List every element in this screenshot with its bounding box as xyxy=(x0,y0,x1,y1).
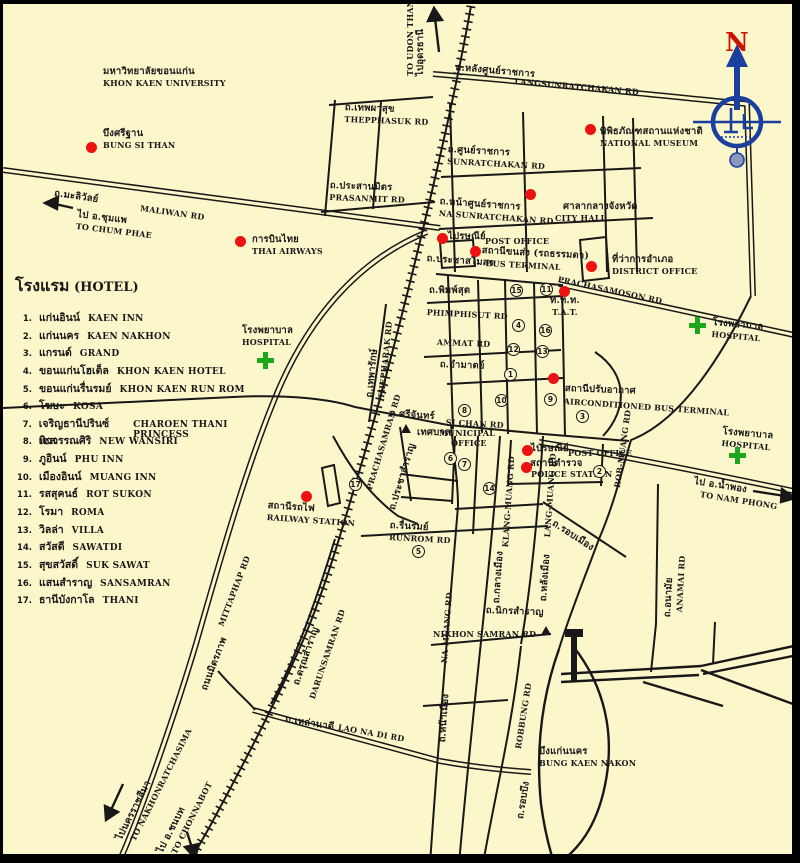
nikhon-samran-triangle-icon xyxy=(541,626,551,635)
label-prasanmit-rd: ถ.ประสานมิตรPRASANMIT RD xyxy=(329,180,405,204)
legend-item-5: 5.ขอนแก่นรื่นรมย์KHON KAEN RUN ROM xyxy=(15,380,285,398)
poi-dot-thai-airways xyxy=(235,236,246,247)
legend-title: โรงแรม (HOTEL) xyxy=(15,274,285,299)
label-ammat-rd-thai: ถ.อำมาตย์ xyxy=(440,359,485,372)
legend-item-6: 6.โฆษะKOSA xyxy=(15,397,285,415)
legend-item-7: 7.เจริญธานีปรินซ์เซสCHAROEN THANI PRINCE… xyxy=(15,415,285,433)
label-city-hall: ศาลากลางจังหวัดCITY HALL xyxy=(555,201,638,223)
compass-ball xyxy=(730,153,744,167)
legend-item-4: 4.ขอนแก่นโฮเต็ลKHON KAEN HOTEL xyxy=(15,362,285,380)
hotel-marker-17: 17 xyxy=(349,478,362,491)
hotel-marker-16: 16 xyxy=(539,324,552,337)
arrow-to-nakhonratchasima xyxy=(105,784,123,820)
legend-item-9: 9.ภูอินน์PHU INN xyxy=(15,450,285,468)
municipal-office-triangle-icon xyxy=(401,424,411,433)
label-ac-bus-terminal-thai: สถานีปรับอากาศ xyxy=(565,383,636,397)
legend-item-11: 11.รสสุคนธ์ROT SUKON xyxy=(15,485,285,503)
poi-dot-ac-bus-terminal xyxy=(548,373,559,384)
label-municipal-office-english: MUNICIPALOFFICE xyxy=(439,428,495,448)
poi-dot-city-hall xyxy=(525,189,536,200)
poi-dot-bus-terminal xyxy=(470,246,481,257)
poi-dot-police-station xyxy=(521,462,532,473)
label-khon-kaen-university: มหาวิทยาลัยขอนแก่นKHON KAEN UNIVERSITY xyxy=(103,66,226,88)
hotel-marker-6: 6 xyxy=(444,452,457,465)
hotel-marker-14: 14 xyxy=(483,482,496,495)
label-runrom-rd: ถ.รื่นรมย์RUNROM RD xyxy=(389,520,452,545)
hotel-marker-5: 5 xyxy=(412,545,425,558)
label-thai-airways: การบินไทยTHAI AIRWAYS xyxy=(252,234,323,256)
poi-dot-district-office xyxy=(586,261,597,272)
khon-kaen-city-map: โรงแรม (HOTEL) 1.แก่นอินน์KAEN INN 2.แก่… xyxy=(0,0,800,863)
hotel-marker-10: 10 xyxy=(495,394,508,407)
hospital-cross-northeast-icon xyxy=(689,317,706,334)
label-post-office-north-thai: ไปรษณีย์ xyxy=(448,231,486,243)
hotel-marker-13: 13 xyxy=(536,345,549,358)
label-nikhon-samran-rd-thai: ถ.นิกรสำราญ xyxy=(486,605,544,619)
legend-item-13: 13.วิลล่าVILLA xyxy=(15,521,285,539)
hotel-marker-11: 11 xyxy=(540,283,553,296)
poi-dot-tat-office xyxy=(559,286,570,297)
arrow-to-udon-thani xyxy=(428,8,442,52)
hospital-cross-east-icon xyxy=(729,447,746,464)
poi-dot-bung-si-than xyxy=(86,142,97,153)
poi-dot-post-office-south xyxy=(522,445,533,456)
label-bung-kaen-nakon: บึงแก่นนครBUNG KAEN NAKON xyxy=(539,746,636,768)
label-hospital-west: โรงพยาบาลHOSPITAL xyxy=(242,325,293,347)
hotel-marker-2: 2 xyxy=(593,465,606,478)
hotel-marker-7: 7 xyxy=(458,458,471,471)
legend-item-1: 1.แก่นอินน์KAEN INN xyxy=(15,309,285,327)
legend-item-14: 14.สวัสดีSAWATDI xyxy=(15,538,285,556)
hotel-marker-9: 9 xyxy=(544,393,557,406)
hotel-marker-1: 1 xyxy=(504,368,517,381)
hospital-cross-west-icon xyxy=(257,352,274,369)
hotel-marker-4: 4 xyxy=(512,319,525,332)
hotel-marker-12: 12 xyxy=(507,343,520,356)
label-phimphisut-rd-thai: ถ.พิมพ์สุต xyxy=(429,285,470,297)
label-tat-office: ท.ท.ท.T.A.T. xyxy=(550,295,580,317)
legend-item-17: 17.ธานีบังกาโลTHANI xyxy=(15,591,285,609)
compass-north-label: N xyxy=(725,28,749,58)
label-bung-si-than: บึงศรีฐานBUNG SI THAN xyxy=(103,128,175,150)
label-national-museum: พิพิธภัณฑสถานแห่งชาติNATIONAL MUSEUM xyxy=(600,126,703,148)
compass-arrow-shaft xyxy=(734,64,740,110)
label-to-udon-thani: TO UDON THANIไปอุดรธานี xyxy=(405,0,427,76)
legend-title-thai: โรงแรม xyxy=(15,276,69,295)
poi-dot-railway-station xyxy=(301,491,312,502)
label-ammat-rd-english: AMMAT RD xyxy=(437,337,491,349)
label-nikhon-samran-rd-english: NIKHON SAMRAN RD xyxy=(433,629,536,639)
label-post-office-north-english: POST OFFICE xyxy=(485,236,549,246)
label-thepphasuk-rd: ถ.เทพผาสุขTHEPPHASUK RD xyxy=(344,102,429,127)
hotel-marker-15: 15 xyxy=(510,284,523,297)
label-district-office: ที่ว่าการอำเภอDISTRICT OFFICE xyxy=(612,254,697,276)
poi-dot-national-museum xyxy=(585,124,596,135)
label-hospital-northeast: โรงพยาบาลHOSPITAL xyxy=(711,317,764,343)
compass-rose xyxy=(693,44,781,167)
legend-item-3: 3.แกรนด์GRAND xyxy=(15,344,285,362)
legend-title-english: (HOTEL) xyxy=(74,280,139,295)
legend-item-10: 10.เมืองอินน์MUANG INN xyxy=(15,468,285,486)
hotel-marker-8: 8 xyxy=(458,404,471,417)
hotel-marker-3: 3 xyxy=(576,410,589,423)
legend-item-12: 12.โรมาROMA xyxy=(15,503,285,521)
poi-dot-post-office-north xyxy=(437,233,448,244)
